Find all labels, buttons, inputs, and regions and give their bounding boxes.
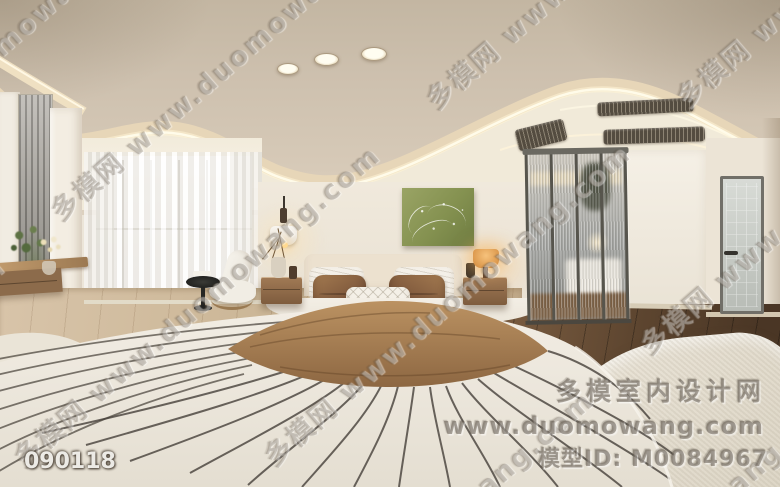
table-lamp-base — [483, 267, 488, 278]
pendant-stem — [280, 208, 287, 223]
recessed-downlight — [361, 47, 387, 61]
recessed-downlight — [277, 63, 299, 75]
watermark-site-name: 多模室内设计网 — [556, 372, 766, 408]
corner-code: 090118 — [24, 449, 116, 474]
door-handle — [724, 251, 738, 255]
flower-vase — [42, 261, 56, 275]
recessed-downlight — [314, 53, 339, 66]
watermark-site-url: www.duomowang.com — [443, 412, 764, 440]
nightstand-bottle — [289, 266, 297, 279]
wall-art-botanical — [402, 188, 474, 246]
book-on-table — [193, 271, 211, 276]
panorama-bedroom-scene: 多模网 www.duomowang.com多模网 www.duomowang.c… — [0, 0, 780, 487]
nightstand-vase — [271, 257, 286, 278]
dark-vase — [466, 263, 475, 278]
watermark-model-id: 模型ID: M0084967 — [538, 441, 768, 473]
table-lamp — [473, 249, 499, 268]
